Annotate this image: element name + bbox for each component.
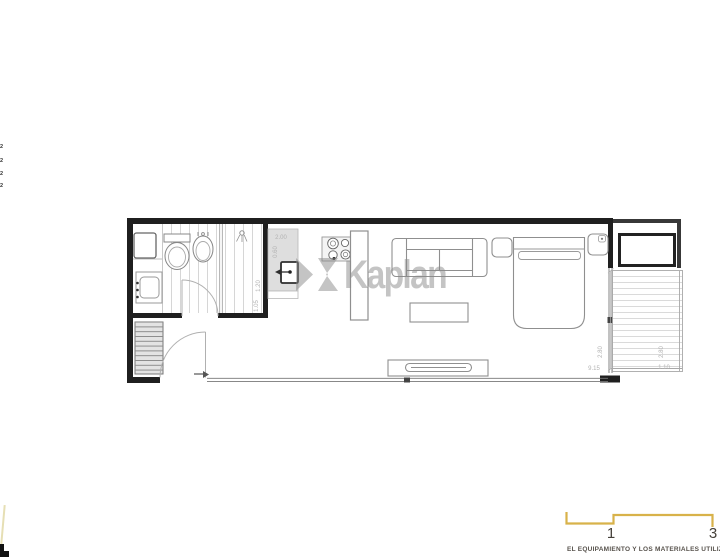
- footer-accent-line: [540, 495, 720, 535]
- dimension-label-main-window-height: 2.80: [597, 341, 605, 363]
- coffee-table: [410, 303, 468, 322]
- floor-plan-drawing: [0, 0, 720, 560]
- page-number-left: 1: [603, 525, 619, 543]
- entry-door: [160, 332, 206, 378]
- stove: [322, 237, 351, 261]
- table-lamp-icon: [599, 236, 606, 243]
- scanned-book-page: 2.00 0.60 1.20 1.05 9.15 2.80 1.10 2.80 …: [0, 0, 720, 560]
- nightstand-left: [492, 238, 512, 257]
- footer-caption: EL EQUIPAMIENTO Y LOS MATERIALES UTILIZA…: [567, 546, 720, 553]
- kitchen-island: [351, 231, 369, 320]
- edge-text-fragment: 2: [0, 144, 3, 150]
- dimension-label-terrace-height: 2.80: [658, 341, 666, 363]
- stairs: [135, 322, 163, 374]
- page-number-right: 3: [705, 525, 720, 543]
- edge-text-fragment: 2: [0, 158, 3, 164]
- terrace-planter: [620, 235, 675, 266]
- dimension-label-terrace-width: 1.10: [652, 364, 676, 372]
- tv-console: [388, 360, 488, 376]
- dimension-label-shower-depth: 1.05: [253, 295, 261, 317]
- dimension-label-shower-width: 1.20: [255, 275, 263, 297]
- sofa: [392, 239, 487, 277]
- dimension-label-kitchen-depth: 0.60: [272, 241, 280, 263]
- dimension-label-main-length: 9.15: [582, 365, 606, 373]
- entry-arrow-icon: [194, 371, 209, 378]
- terrace-deck: [613, 271, 682, 371]
- edge-text-fragment: 2: [0, 183, 3, 189]
- vanity-sink: [136, 272, 162, 303]
- corner-glyph: [0, 551, 9, 557]
- bed: [514, 238, 585, 329]
- toilet: [164, 234, 190, 270]
- closet: [134, 233, 156, 258]
- main-window: [207, 378, 608, 383]
- nightstand-right: [588, 234, 608, 255]
- edge-text-fragment: 2: [0, 171, 3, 177]
